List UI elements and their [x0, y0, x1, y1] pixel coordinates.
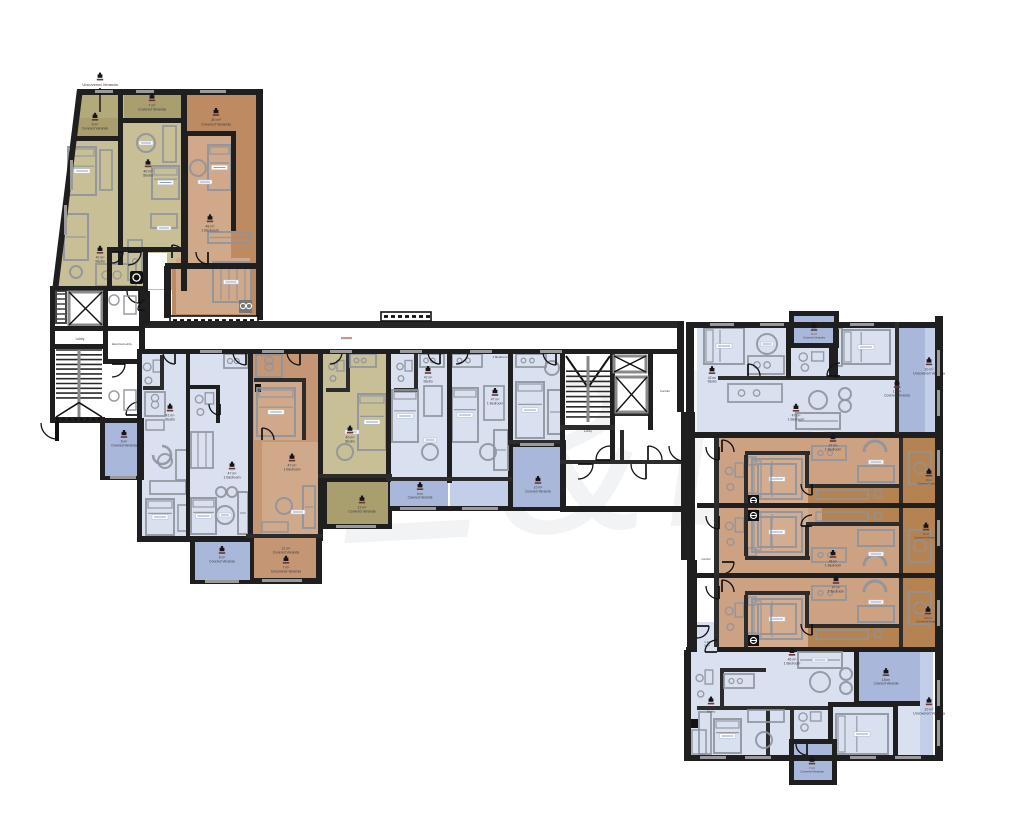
svg-text:40 m²Studio: 40 m²Studio	[143, 169, 153, 177]
svg-text:42 m²Studio: 42 m²Studio	[423, 376, 433, 384]
svg-text:Corridor: Corridor	[660, 389, 670, 393]
svg-text:40 m²Studio: 40 m²Studio	[345, 436, 355, 444]
svg-text:1 Bedroom: 1 Bedroom	[493, 355, 508, 359]
svg-text:42 m²Studio: 42 m²Studio	[707, 706, 716, 714]
svg-text:Lobby: Lobby	[76, 337, 85, 341]
svg-text:Electrical Lobby: Electrical Lobby	[112, 342, 132, 346]
svg-text:Uncovered Veranda: Uncovered Veranda	[82, 82, 118, 87]
svg-text:42 m²Studio: 42 m²Studio	[707, 376, 716, 384]
svg-text:1.136 m²: 1.136 m²	[704, 640, 710, 647]
svg-text:42 m²Studio: 42 m²Studio	[95, 256, 105, 264]
svg-text:Corridor: Corridor	[701, 557, 711, 561]
svg-text:Lobby: Lobby	[584, 429, 593, 433]
svg-text:42 m²Studio: 42 m²Studio	[165, 414, 175, 422]
